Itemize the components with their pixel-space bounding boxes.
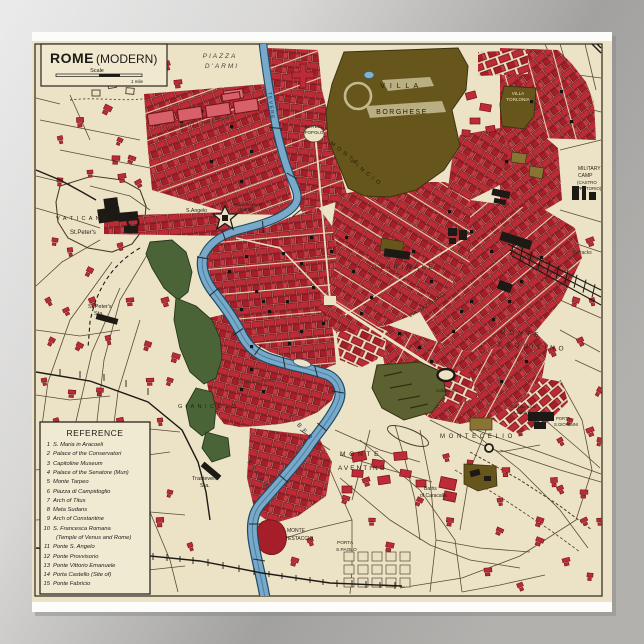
svg-text:12: 12 <box>44 554 51 560</box>
svg-text:M O N T E C E L I O: M O N T E C E L I O <box>440 434 513 440</box>
svg-text:REFERENCE: REFERENCE <box>67 428 124 438</box>
svg-text:Palace of the Conservatori: Palace of the Conservatori <box>53 451 122 457</box>
svg-text:Hadrian: Hadrian <box>238 207 254 212</box>
svg-text:Capitoline Museum: Capitoline Museum <box>53 461 103 467</box>
svg-text:S.Angelo: S.Angelo <box>186 208 207 214</box>
svg-text:Colosseum: Colosseum <box>436 388 458 393</box>
svg-text:POPOLO: POPOLO <box>305 130 324 135</box>
svg-text:St.Peter's: St.Peter's <box>70 230 96 236</box>
svg-text:Barracks: Barracks <box>572 250 592 256</box>
svg-text:of Caracalla: of Caracalla <box>420 493 447 499</box>
svg-text:Ponte Vittorio Emanuele: Ponte Vittorio Emanuele <box>53 563 116 569</box>
svg-text:Monte Tarpeo: Monte Tarpeo <box>53 479 89 485</box>
svg-text:Sta.: Sta. <box>200 483 210 489</box>
svg-text:Porta Castello (Site of): Porta Castello (Site of) <box>53 572 111 578</box>
svg-text:MILITARY: MILITARY <box>578 166 601 172</box>
svg-text:Trastevere: Trastevere <box>192 476 218 482</box>
svg-text:CAMP: CAMP <box>578 173 593 179</box>
svg-text:G I A N I C O L O: G I A N I C O L O <box>178 404 237 410</box>
svg-text:ROME: ROME <box>50 50 94 66</box>
svg-text:St.Peter's: St.Peter's <box>88 304 112 310</box>
svg-text:S.GIOVANNI: S.GIOVANNI <box>554 422 578 427</box>
svg-text:MONTE: MONTE <box>287 528 306 534</box>
svg-text:Ponte Provvisorio: Ponte Provvisorio <box>53 554 99 560</box>
svg-text:TESTACCIO: TESTACCIO <box>285 536 313 542</box>
svg-text:V I L L A: V I L L A <box>380 83 419 90</box>
svg-text:S. Francesca Romana: S. Francesca Romana <box>53 526 111 532</box>
svg-text:(CASTRO: (CASTRO <box>577 180 597 185</box>
svg-text:Sta.: Sta. <box>94 311 104 317</box>
svg-text:Q U I R I N A L E: Q U I R I N A L E <box>372 265 434 271</box>
svg-text:Arch of Constantine: Arch of Constantine <box>52 516 105 522</box>
svg-text:VILLA: VILLA <box>512 91 525 96</box>
svg-text:10: 10 <box>44 526 51 532</box>
svg-text:Ponte Fabricio: Ponte Fabricio <box>53 581 91 587</box>
svg-text:P.ZA DEL: P.ZA DEL <box>305 124 324 129</box>
svg-text:11: 11 <box>44 544 50 550</box>
svg-text:Scale: Scale <box>90 68 104 74</box>
svg-text:(Temple of Venus and Rome): (Temple of Venus and Rome) <box>56 535 131 541</box>
svg-text:(MODERN): (MODERN) <box>96 52 157 66</box>
svg-text:TORLONIA: TORLONIA <box>506 97 530 102</box>
svg-text:Arch of Titus: Arch of Titus <box>52 498 86 504</box>
svg-text:1: 1 <box>47 442 50 448</box>
svg-text:S.Giovanni in: S.Giovanni in <box>510 404 537 409</box>
svg-text:Meta Sudans: Meta Sudans <box>53 507 87 513</box>
svg-text:M O N T E: M O N T E <box>340 451 379 458</box>
svg-text:Palace of the Senatore (Mun): Palace of the Senatore (Mun) <box>53 470 129 476</box>
svg-text:15: 15 <box>44 581 51 587</box>
svg-text:1 mile: 1 mile <box>131 79 144 84</box>
svg-text:V A T I C A N O: V A T I C A N O <box>56 216 108 222</box>
svg-text:Laterano: Laterano <box>514 410 532 415</box>
svg-text:Ponte S. Angelo: Ponte S. Angelo <box>53 544 95 550</box>
svg-text:Baths: Baths <box>424 486 437 492</box>
svg-text:D'ARMI: D'ARMI <box>205 63 239 70</box>
svg-text:4: 4 <box>47 470 50 476</box>
svg-text:S.PAOLO: S.PAOLO <box>336 547 357 553</box>
svg-text:13: 13 <box>44 563 51 569</box>
svg-text:AVENTINO: AVENTINO <box>338 465 387 472</box>
svg-text:Piazza di Campidoglio: Piazza di Campidoglio <box>53 489 111 495</box>
svg-text:14: 14 <box>44 572 50 578</box>
svg-text:PORTA: PORTA <box>337 540 354 546</box>
svg-text:PORTA: PORTA <box>556 416 570 421</box>
svg-text:BORGHESE: BORGHESE <box>376 109 428 116</box>
svg-text:PRETORIO): PRETORIO) <box>577 186 602 191</box>
svg-text:PIAZZA: PIAZZA <box>203 53 238 60</box>
svg-text:S. Maria in Aracoeli: S. Maria in Aracoeli <box>53 442 104 448</box>
